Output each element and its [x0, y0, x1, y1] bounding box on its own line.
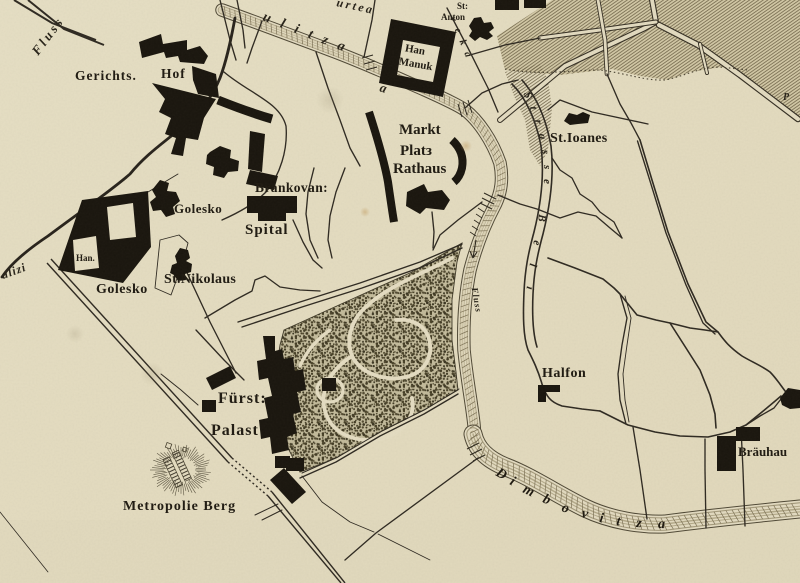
svg-text:B: B [535, 213, 548, 223]
svg-text:Hof: Hof [161, 66, 186, 81]
svg-text:Halfon: Halfon [542, 366, 586, 381]
svg-text:Fürst:: Fürst: [218, 390, 267, 407]
svg-text:e: e [541, 179, 553, 184]
svg-text:Palast: Palast [211, 422, 259, 439]
svg-text:Gerichts.: Gerichts. [75, 68, 137, 83]
svg-text:St:: St: [457, 1, 468, 11]
svg-text:Platз: Platз [400, 143, 432, 159]
svg-text:Metropolie Berg: Metropolie Berg [123, 499, 236, 514]
svg-text:Golesko: Golesko [96, 282, 148, 297]
svg-text:s: s [541, 164, 553, 169]
svg-text:a: a [658, 517, 665, 532]
svg-text:P: P [783, 92, 790, 103]
svg-text:s: s [539, 149, 551, 155]
svg-text:Bräuhau: Bräuhau [738, 444, 787, 459]
svg-text:St.Nikolaus: St.Nikolaus [164, 272, 236, 287]
svg-text:Markt: Markt [399, 122, 441, 138]
svg-text:St.Ioanes: St.Ioanes [550, 131, 608, 146]
svg-text:Golesko: Golesko [174, 201, 222, 216]
svg-text:Han.: Han. [76, 253, 95, 263]
svg-text:Brankovan:: Brankovan: [255, 180, 328, 195]
svg-text:Spital: Spital [245, 222, 289, 238]
svg-text:Rathaus: Rathaus [393, 161, 447, 177]
